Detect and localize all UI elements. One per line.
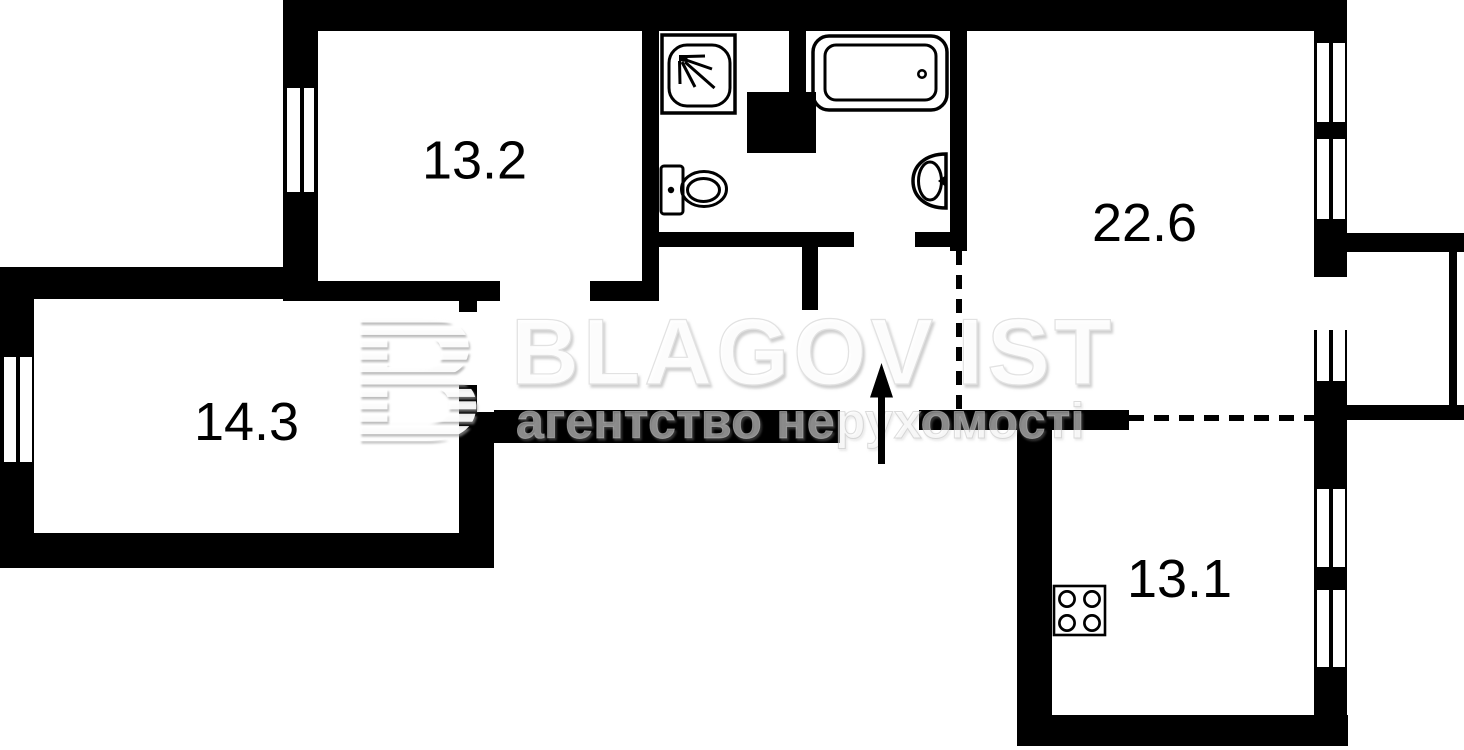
svg-text:13.1: 13.1: [1127, 549, 1232, 609]
svg-text:BLAGOVIST: BLAGOVIST: [511, 299, 1115, 404]
svg-text:14.3: 14.3: [194, 392, 299, 452]
svg-text:13.2: 13.2: [422, 131, 527, 191]
svg-text:22.6: 22.6: [1092, 193, 1197, 253]
svg-text:агентство нерухомості: агентство нерухомості: [516, 393, 1085, 449]
